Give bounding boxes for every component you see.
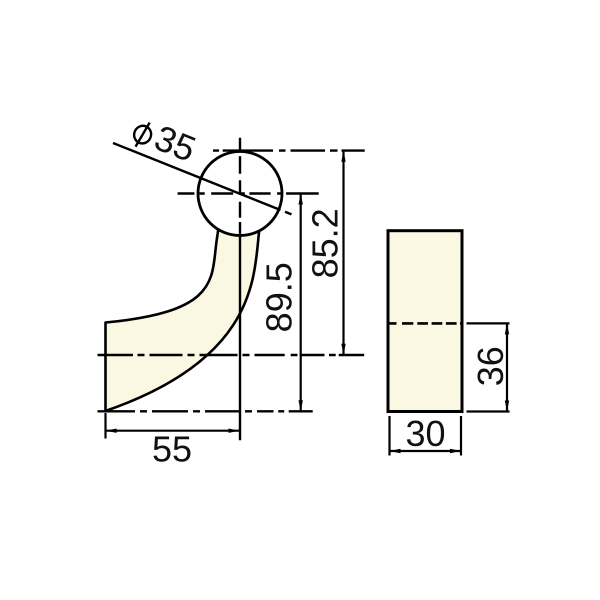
svg-text:36: 36	[470, 346, 511, 386]
svg-text:89.5: 89.5	[259, 262, 300, 332]
svg-text:55: 55	[152, 429, 192, 470]
svg-text:30: 30	[405, 413, 445, 454]
svg-text:85.2: 85.2	[305, 208, 346, 278]
